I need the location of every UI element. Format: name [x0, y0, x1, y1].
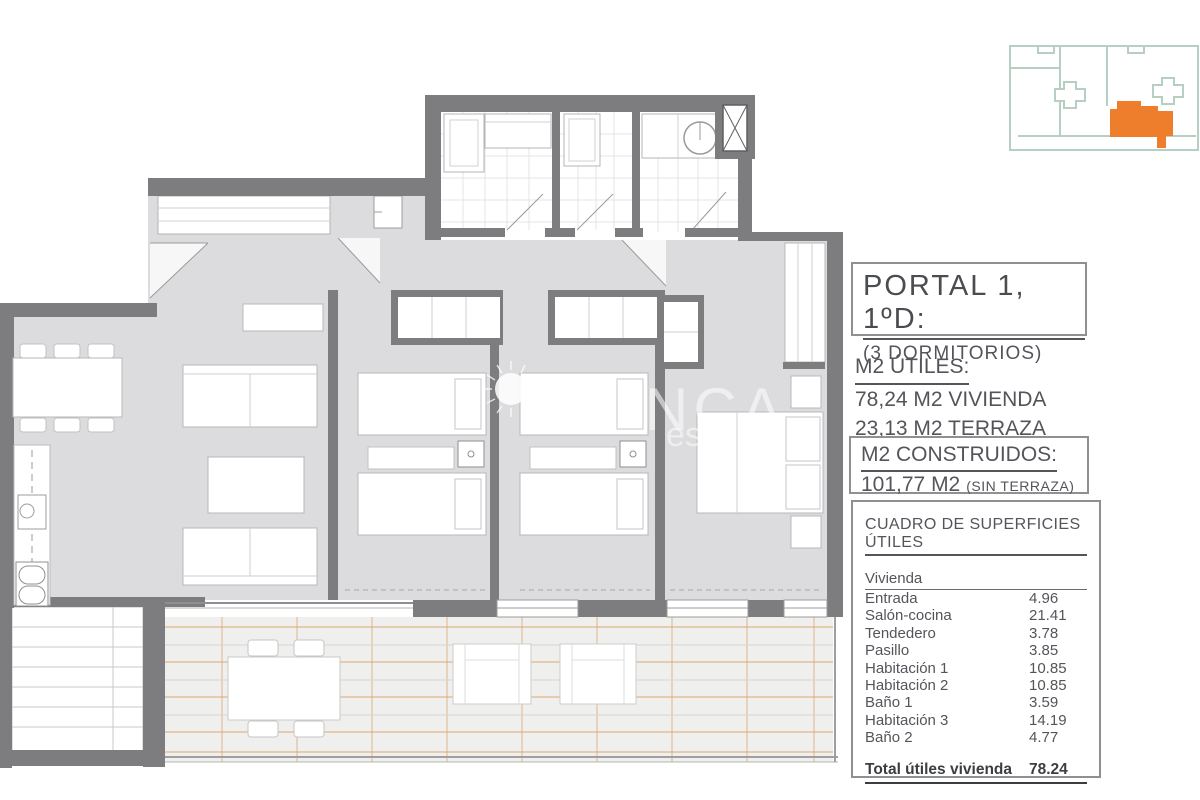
bathroom-1	[441, 112, 552, 230]
surface-row: Salón-cocina21.41	[865, 607, 1087, 624]
sun-icon	[495, 373, 527, 405]
surface-row-label: Habitación 3	[865, 712, 1029, 729]
single-bed	[520, 373, 648, 435]
lounge-chair	[560, 644, 636, 704]
surface-row-value: 4.77	[1029, 729, 1087, 746]
wardrobe	[783, 243, 825, 369]
surface-row-label: Baño 1	[865, 694, 1029, 711]
surface-row-label: Tendedero	[865, 625, 1029, 642]
bench	[530, 447, 616, 469]
surface-row-label: Habitación 1	[865, 660, 1029, 677]
construidos-value: 101,77 M2	[861, 472, 960, 502]
surface-row-label: Pasillo	[865, 642, 1029, 659]
surface-row: Entrada4.96	[865, 590, 1087, 607]
nightstand	[791, 376, 821, 408]
tv-sideboard	[243, 304, 323, 331]
utiles-heading: M2 ÚTILES:	[855, 352, 969, 385]
surface-row: Baño 13.59	[865, 694, 1087, 711]
surface-row-label: Baño 2	[865, 729, 1029, 746]
portal-title: PORTAL 1, 1ºD:	[863, 270, 1085, 340]
surfaces-table-title: CUADRO DE SUPERFICIES ÚTILES	[865, 516, 1087, 556]
surface-row-label: Entrada	[865, 590, 1029, 607]
construidos-heading: M2 CONSTRUIDOS:	[861, 442, 1057, 472]
single-bed	[358, 373, 486, 435]
sofa	[183, 528, 317, 585]
kitchen-counter	[14, 445, 50, 606]
utiles-section: M2 ÚTILES: 78,24 M2 VIVIENDA 23,13 M2 TE…	[855, 352, 1085, 443]
surface-row: Pasillo3.85	[865, 642, 1087, 659]
portal-title-box: PORTAL 1, 1ºD: (3 DORMITORIOS)	[851, 262, 1087, 336]
construidos-note: (SIN TERRAZA)	[966, 478, 1074, 494]
sink-icon	[16, 562, 48, 606]
sofa	[183, 365, 317, 427]
surface-row-value: 10.85	[1029, 677, 1087, 694]
nightstand	[791, 516, 821, 548]
bench	[368, 447, 454, 469]
nightstand	[620, 441, 646, 467]
surface-row-value: 21.41	[1029, 607, 1087, 624]
surface-row: Habitación 314.19	[865, 712, 1087, 729]
surfaces-total-row: Total útiles vivienda 78.24	[865, 761, 1087, 784]
single-bed	[358, 473, 486, 535]
surfaces-group: Vivienda	[865, 570, 1087, 590]
total-label: Total útiles vivienda	[865, 761, 1029, 779]
elevator-shaft	[723, 105, 747, 151]
surface-row-value: 10.85	[1029, 660, 1087, 677]
surface-row-label: Habitación 2	[865, 677, 1029, 694]
surface-row-value: 14.19	[1029, 712, 1087, 729]
stairwell	[12, 607, 143, 752]
surface-row-value: 3.78	[1029, 625, 1087, 642]
coffee-table	[208, 457, 304, 513]
surface-row: Baño 24.77	[865, 729, 1087, 746]
utiles-vivienda: 78,24 M2 VIVIENDA	[855, 385, 1085, 414]
surface-row-value: 3.85	[1029, 642, 1087, 659]
single-bed	[520, 473, 648, 535]
surface-row-label: Salón-cocina	[865, 607, 1029, 624]
hall-fixture	[374, 196, 402, 228]
surface-row: Habitación 110.85	[865, 660, 1087, 677]
lounge-chair	[453, 644, 531, 704]
surfaces-rows: Entrada4.96Salón-cocina21.41Tendedero3.7…	[865, 590, 1087, 747]
floor-plan-page: NCA est PORTAL 1, 1ºD: (3 DORMITORIOS) M…	[0, 0, 1200, 800]
nightstand	[458, 441, 484, 467]
surface-row: Habitación 210.85	[865, 677, 1087, 694]
total-value: 78.24	[1029, 761, 1087, 779]
dining-table	[13, 344, 122, 432]
surface-row-value: 3.59	[1029, 694, 1087, 711]
construidos-box: M2 CONSTRUIDOS: 101,77 M2(SIN TERRAZA)	[849, 436, 1089, 494]
surface-row-value: 4.96	[1029, 590, 1087, 607]
key-plan	[1008, 44, 1200, 156]
surface-row: Tendedero3.78	[865, 625, 1087, 642]
floor-plan: NCA est	[0, 0, 850, 800]
entry-wardrobe	[158, 196, 330, 234]
surfaces-table-box: CUADRO DE SUPERFICIES ÚTILES Vivienda En…	[851, 500, 1101, 778]
bathroom-2	[560, 112, 632, 230]
watermark-text-2: est	[666, 416, 712, 454]
